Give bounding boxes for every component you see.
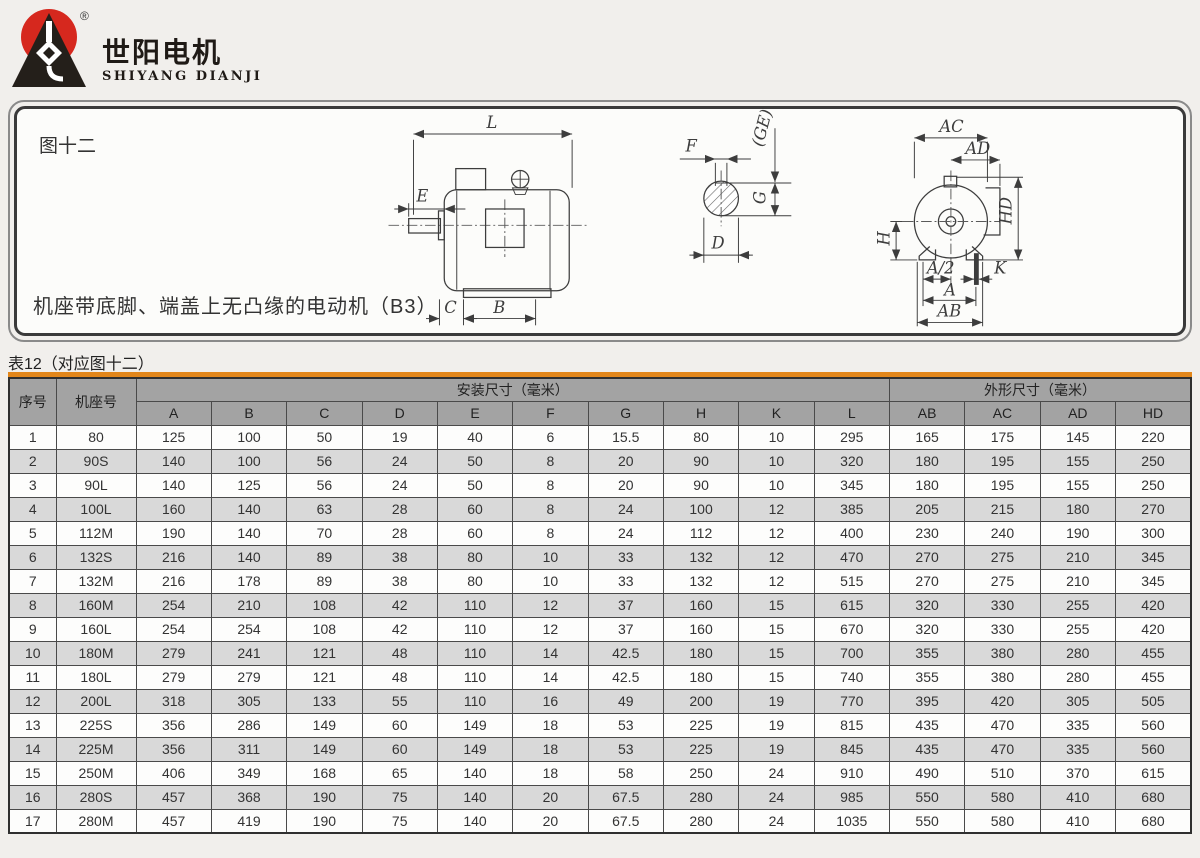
column-header-frame: 机座号 xyxy=(56,378,136,425)
dim-value: 318 xyxy=(136,689,211,713)
dim-value: 250 xyxy=(663,761,738,785)
dim-value: 75 xyxy=(362,785,437,809)
dim-value: 550 xyxy=(889,809,964,833)
dim-value: 220 xyxy=(1115,425,1191,449)
dim-value: 80 xyxy=(663,425,738,449)
dim-value: 14 xyxy=(513,665,588,689)
dim-value: 110 xyxy=(437,665,512,689)
dim-value: 132 xyxy=(663,545,738,569)
dim-value: 205 xyxy=(889,497,964,521)
dim-value: 345 xyxy=(814,473,889,497)
dim-value: 108 xyxy=(287,593,362,617)
header-group-row: 序号 机座号 安装尺寸（毫米） 外形尺寸（毫米） xyxy=(9,378,1191,401)
dim-value: 56 xyxy=(287,449,362,473)
dim-value: 67.5 xyxy=(588,785,663,809)
dim-value: 455 xyxy=(1115,641,1191,665)
svg-text:C: C xyxy=(444,298,457,317)
table-row: 7132M21617889388010331321251527027521034… xyxy=(9,569,1191,593)
dim-value: 8 xyxy=(513,449,588,473)
dim-value: 180 xyxy=(1040,497,1115,521)
column-group-install: 安装尺寸（毫米） xyxy=(136,378,889,401)
row-number: 14 xyxy=(9,737,56,761)
dim-value: 12 xyxy=(739,521,814,545)
dim-value: 50 xyxy=(287,425,362,449)
dim-value: 420 xyxy=(965,689,1040,713)
dim-value: 345 xyxy=(1115,545,1191,569)
dim-value: 89 xyxy=(287,569,362,593)
dim-value: 368 xyxy=(211,785,286,809)
registered-mark: ® xyxy=(80,9,89,23)
dim-value: 216 xyxy=(136,545,211,569)
svg-text:L: L xyxy=(486,113,498,132)
company-logo: ® 世阳电机 SHIYANG DIANJI xyxy=(10,6,262,92)
dim-value: 168 xyxy=(287,761,362,785)
dim-value: 370 xyxy=(1040,761,1115,785)
frame-size: 132M xyxy=(56,569,136,593)
dim-value: 470 xyxy=(965,713,1040,737)
dim-value: 700 xyxy=(814,641,889,665)
dim-value: 241 xyxy=(211,641,286,665)
row-number: 12 xyxy=(9,689,56,713)
dim-value: 10 xyxy=(739,449,814,473)
dim-value: 8 xyxy=(513,521,588,545)
table-row: 290S1401005624508209010320180195155250 xyxy=(9,449,1191,473)
dim-value: 20 xyxy=(513,809,588,833)
row-number: 16 xyxy=(9,785,56,809)
dim-value: 37 xyxy=(588,593,663,617)
dim-value: 305 xyxy=(211,689,286,713)
dim-value: 38 xyxy=(362,569,437,593)
frame-size: 250M xyxy=(56,761,136,785)
row-number: 11 xyxy=(9,665,56,689)
dim-value: 15 xyxy=(739,641,814,665)
dim-value: 108 xyxy=(287,617,362,641)
dim-value: 175 xyxy=(965,425,1040,449)
dim-value: 28 xyxy=(362,497,437,521)
dim-value: 470 xyxy=(965,737,1040,761)
dim-value: 48 xyxy=(362,665,437,689)
dim-value: 910 xyxy=(814,761,889,785)
dim-value: 145 xyxy=(1040,425,1115,449)
table-row: 14225M3563111496014918532251984543547033… xyxy=(9,737,1191,761)
frame-size: 90L xyxy=(56,473,136,497)
dim-value: 190 xyxy=(287,809,362,833)
dim-value: 100 xyxy=(211,449,286,473)
dim-value: 20 xyxy=(588,449,663,473)
table-row: 11180L279279121481101442.518015740355380… xyxy=(9,665,1191,689)
logo-emblem-icon: ® xyxy=(10,6,94,92)
dim-value: 18 xyxy=(513,761,588,785)
column-header-h: H xyxy=(663,401,738,425)
dim-value: 24 xyxy=(739,785,814,809)
dim-value: 385 xyxy=(814,497,889,521)
dim-value: 250 xyxy=(1115,473,1191,497)
dim-value: 330 xyxy=(965,617,1040,641)
column-header-k: K xyxy=(739,401,814,425)
dim-value: 15 xyxy=(739,665,814,689)
dim-value: 42.5 xyxy=(588,641,663,665)
dim-value: 24 xyxy=(739,761,814,785)
dim-value: 155 xyxy=(1040,473,1115,497)
dim-value: 320 xyxy=(889,593,964,617)
dim-value: 121 xyxy=(287,641,362,665)
dim-value: 133 xyxy=(287,689,362,713)
dim-value: 60 xyxy=(362,737,437,761)
dim-value: 58 xyxy=(588,761,663,785)
dim-value: 455 xyxy=(1115,665,1191,689)
dim-value: 580 xyxy=(965,809,1040,833)
dim-value: 12 xyxy=(739,497,814,521)
table-row: 4100L16014063286082410012385205215180270 xyxy=(9,497,1191,521)
dim-value: 254 xyxy=(211,617,286,641)
dim-value: 140 xyxy=(437,785,512,809)
frame-size: 225S xyxy=(56,713,136,737)
dim-value: 18 xyxy=(513,737,588,761)
dim-value: 38 xyxy=(362,545,437,569)
svg-text:A/2: A/2 xyxy=(925,258,955,277)
dim-value: 24 xyxy=(588,497,663,521)
dim-value: 286 xyxy=(211,713,286,737)
dim-value: 470 xyxy=(814,545,889,569)
frame-size: 280S xyxy=(56,785,136,809)
dim-value: 149 xyxy=(437,713,512,737)
dim-value: 80 xyxy=(437,545,512,569)
dim-value: 160 xyxy=(136,497,211,521)
dim-value: 300 xyxy=(1115,521,1191,545)
column-header-c: C xyxy=(287,401,362,425)
row-number: 9 xyxy=(9,617,56,641)
dim-value: 63 xyxy=(287,497,362,521)
dim-value: 15 xyxy=(739,593,814,617)
dim-value: 140 xyxy=(211,545,286,569)
dim-value: 100 xyxy=(211,425,286,449)
dim-value: 56 xyxy=(287,473,362,497)
dim-value: 110 xyxy=(437,617,512,641)
dim-value: 356 xyxy=(136,713,211,737)
dim-value: 140 xyxy=(211,521,286,545)
dim-value: 110 xyxy=(437,593,512,617)
dim-value: 89 xyxy=(287,545,362,569)
dim-value: 33 xyxy=(588,545,663,569)
column-header-e: E xyxy=(437,401,512,425)
dim-value: 335 xyxy=(1040,737,1115,761)
svg-text:D: D xyxy=(711,233,725,252)
dim-value: 70 xyxy=(287,521,362,545)
table-row: 17280M457419190751402067.528024103555058… xyxy=(9,809,1191,833)
dim-value: 815 xyxy=(814,713,889,737)
dim-value: 395 xyxy=(889,689,964,713)
figure-label: 图十二 xyxy=(39,131,96,158)
dim-value: 295 xyxy=(814,425,889,449)
dim-value: 10 xyxy=(739,425,814,449)
dim-value: 490 xyxy=(889,761,964,785)
figure-panel: L E C B xyxy=(8,100,1192,342)
dim-value: 48 xyxy=(362,641,437,665)
svg-text:H: H xyxy=(874,231,893,247)
table-row: 5112M19014070286082411212400230240190300 xyxy=(9,521,1191,545)
svg-text:AB: AB xyxy=(935,302,961,321)
column-header-g: G xyxy=(588,401,663,425)
dim-value: 255 xyxy=(1040,593,1115,617)
dim-value: 215 xyxy=(965,497,1040,521)
frame-size: 200L xyxy=(56,689,136,713)
table-title: 表12（对应图十二） xyxy=(8,350,154,374)
dim-value: 419 xyxy=(211,809,286,833)
row-number: 2 xyxy=(9,449,56,473)
frame-size: 225M xyxy=(56,737,136,761)
dim-value: 6 xyxy=(513,425,588,449)
dim-value: 53 xyxy=(588,737,663,761)
column-group-outline: 外形尺寸（毫米） xyxy=(889,378,1191,401)
dim-value: 20 xyxy=(588,473,663,497)
dim-value: 24 xyxy=(362,449,437,473)
dim-value: 18 xyxy=(513,713,588,737)
dim-value: 254 xyxy=(136,617,211,641)
row-number: 17 xyxy=(9,809,56,833)
dim-value: 225 xyxy=(663,737,738,761)
dim-value: 110 xyxy=(437,641,512,665)
dim-value: 560 xyxy=(1115,713,1191,737)
dim-value: 132 xyxy=(663,569,738,593)
dim-value: 90 xyxy=(663,473,738,497)
frame-size: 280M xyxy=(56,809,136,833)
dim-value: 28 xyxy=(362,521,437,545)
dim-value: 19 xyxy=(362,425,437,449)
dim-value: 24 xyxy=(362,473,437,497)
dim-value: 615 xyxy=(1115,761,1191,785)
dim-value: 149 xyxy=(437,737,512,761)
page: { "logo": { "name_cn": "世阳电机", "name_en"… xyxy=(0,0,1200,858)
end-view-drawing: AC AD HD H A/2 xyxy=(874,117,1023,326)
dim-value: 255 xyxy=(1040,617,1115,641)
dim-value: 50 xyxy=(437,473,512,497)
dim-value: 190 xyxy=(136,521,211,545)
dim-value: 12 xyxy=(513,617,588,641)
dim-value: 275 xyxy=(965,545,1040,569)
dim-value: 60 xyxy=(437,497,512,521)
dim-value: 670 xyxy=(814,617,889,641)
dim-value: 121 xyxy=(287,665,362,689)
svg-text:G: G xyxy=(750,191,769,204)
dim-value: 230 xyxy=(889,521,964,545)
dim-value: 140 xyxy=(437,809,512,833)
dim-value: 75 xyxy=(362,809,437,833)
dim-value: 845 xyxy=(814,737,889,761)
dim-value: 55 xyxy=(362,689,437,713)
dim-value: 410 xyxy=(1040,785,1115,809)
column-header-b: B xyxy=(211,401,286,425)
table-row: 10180M279241121481101442.518015700355380… xyxy=(9,641,1191,665)
dim-value: 305 xyxy=(1040,689,1115,713)
column-header-d: D xyxy=(362,401,437,425)
dim-value: 270 xyxy=(889,545,964,569)
dim-value: 200 xyxy=(663,689,738,713)
dim-value: 349 xyxy=(211,761,286,785)
dim-value: 406 xyxy=(136,761,211,785)
frame-size: 160L xyxy=(56,617,136,641)
dim-value: 210 xyxy=(1040,545,1115,569)
column-header-no: 序号 xyxy=(9,378,56,425)
dim-value: 279 xyxy=(211,665,286,689)
table-row: 180125100501940615.58010295165175145220 xyxy=(9,425,1191,449)
svg-text:AC: AC xyxy=(937,117,964,136)
row-number: 8 xyxy=(9,593,56,617)
dim-value: 216 xyxy=(136,569,211,593)
dim-value: 380 xyxy=(965,641,1040,665)
frame-size: 160M xyxy=(56,593,136,617)
dim-value: 112 xyxy=(663,521,738,545)
dim-value: 37 xyxy=(588,617,663,641)
column-header-f: F xyxy=(513,401,588,425)
dim-value: 515 xyxy=(814,569,889,593)
dim-value: 125 xyxy=(136,425,211,449)
dim-value: 178 xyxy=(211,569,286,593)
dim-value: 435 xyxy=(889,713,964,737)
table-row: 16280S457368190751402067.528024985550580… xyxy=(9,785,1191,809)
figure-panel-inner: L E C B xyxy=(14,106,1186,336)
figure-caption: 机座带底脚、端盖上无凸缘的电动机（B3） xyxy=(33,290,437,319)
dim-value: 280 xyxy=(1040,641,1115,665)
dim-value: 140 xyxy=(211,497,286,521)
table-row: 8160M25421010842110123716015615320330255… xyxy=(9,593,1191,617)
dim-value: 165 xyxy=(889,425,964,449)
frame-size: 180M xyxy=(56,641,136,665)
dim-value: 8 xyxy=(513,497,588,521)
dim-value: 270 xyxy=(1115,497,1191,521)
frame-size: 180L xyxy=(56,665,136,689)
dim-value: 140 xyxy=(437,761,512,785)
dim-value: 335 xyxy=(1040,713,1115,737)
dim-value: 505 xyxy=(1115,689,1191,713)
dim-value: 225 xyxy=(663,713,738,737)
table-body: 180125100501940615.580102951651751452202… xyxy=(9,425,1191,833)
dim-value: 90 xyxy=(663,449,738,473)
dim-value: 275 xyxy=(965,569,1040,593)
frame-size: 90S xyxy=(56,449,136,473)
dim-value: 42 xyxy=(362,593,437,617)
dim-value: 280 xyxy=(1040,665,1115,689)
dim-value: 190 xyxy=(1040,521,1115,545)
dim-value: 457 xyxy=(136,785,211,809)
dim-value: 160 xyxy=(663,593,738,617)
dim-value: 60 xyxy=(437,521,512,545)
dim-value: 195 xyxy=(965,449,1040,473)
dim-value: 149 xyxy=(287,713,362,737)
dim-value: 280 xyxy=(663,785,738,809)
dim-value: 740 xyxy=(814,665,889,689)
table-row: 13225S3562861496014918532251981543547033… xyxy=(9,713,1191,737)
dim-value: 155 xyxy=(1040,449,1115,473)
dim-value: 60 xyxy=(362,713,437,737)
column-header-a: A xyxy=(136,401,211,425)
frame-size: 132S xyxy=(56,545,136,569)
row-number: 13 xyxy=(9,713,56,737)
dim-value: 160 xyxy=(663,617,738,641)
dim-value: 24 xyxy=(739,809,814,833)
dim-value: 53 xyxy=(588,713,663,737)
dim-value: 279 xyxy=(136,665,211,689)
svg-text:E: E xyxy=(415,186,428,205)
column-header-hd: HD xyxy=(1115,401,1191,425)
dim-value: 380 xyxy=(965,665,1040,689)
dim-value: 125 xyxy=(211,473,286,497)
company-name-en: SHIYANG DIANJI xyxy=(102,69,262,84)
dim-value: 10 xyxy=(739,473,814,497)
dim-value: 254 xyxy=(136,593,211,617)
company-name-cn: 世阳电机 xyxy=(102,38,262,67)
dim-value: 12 xyxy=(513,593,588,617)
dimensions-table: 序号 机座号 安装尺寸（毫米） 外形尺寸（毫米） ABCDEFGHKLABACA… xyxy=(8,377,1192,834)
dim-value: 49 xyxy=(588,689,663,713)
dim-value: 435 xyxy=(889,737,964,761)
dim-value: 65 xyxy=(362,761,437,785)
table-row: 15250M4063491686514018582502491049051037… xyxy=(9,761,1191,785)
frame-size: 80 xyxy=(56,425,136,449)
dim-value: 10 xyxy=(513,545,588,569)
svg-text:K: K xyxy=(993,258,1007,277)
dim-value: 457 xyxy=(136,809,211,833)
dim-value: 279 xyxy=(136,641,211,665)
dim-value: 42 xyxy=(362,617,437,641)
dim-value: 311 xyxy=(211,737,286,761)
column-header-ab: AB xyxy=(889,401,964,425)
dim-value: 345 xyxy=(1115,569,1191,593)
row-number: 5 xyxy=(9,521,56,545)
dim-value: 330 xyxy=(965,593,1040,617)
dim-value: 770 xyxy=(814,689,889,713)
dim-value: 14 xyxy=(513,641,588,665)
dim-value: 355 xyxy=(889,665,964,689)
dim-value: 320 xyxy=(814,449,889,473)
column-header-l: L xyxy=(814,401,889,425)
dim-value: 10 xyxy=(513,569,588,593)
svg-text:HD: HD xyxy=(996,197,1015,225)
dim-value: 195 xyxy=(965,473,1040,497)
column-header-ac: AC xyxy=(965,401,1040,425)
row-number: 10 xyxy=(9,641,56,665)
dim-value: 50 xyxy=(437,449,512,473)
row-number: 15 xyxy=(9,761,56,785)
dim-value: 210 xyxy=(211,593,286,617)
dim-value: 180 xyxy=(663,641,738,665)
dim-value: 12 xyxy=(739,545,814,569)
dim-value: 110 xyxy=(437,689,512,713)
dim-value: 420 xyxy=(1115,617,1191,641)
table-row: 390L1401255624508209010345180195155250 xyxy=(9,473,1191,497)
dim-value: 19 xyxy=(739,689,814,713)
dim-value: 80 xyxy=(437,569,512,593)
dim-value: 210 xyxy=(1040,569,1115,593)
dim-value: 33 xyxy=(588,569,663,593)
column-header-ad: AD xyxy=(1040,401,1115,425)
table-row: 6132S21614089388010331321247027027521034… xyxy=(9,545,1191,569)
dim-value: 615 xyxy=(814,593,889,617)
dim-value: 100 xyxy=(663,497,738,521)
dim-value: 180 xyxy=(663,665,738,689)
dim-value: 180 xyxy=(889,449,964,473)
dim-value: 12 xyxy=(739,569,814,593)
dim-value: 67.5 xyxy=(588,809,663,833)
row-number: 1 xyxy=(9,425,56,449)
table-row: 9160L25425410842110123716015670320330255… xyxy=(9,617,1191,641)
subheader-row: ABCDEFGHKLABACADHD xyxy=(9,401,1191,425)
dim-value: 320 xyxy=(889,617,964,641)
row-number: 6 xyxy=(9,545,56,569)
frame-size: 112M xyxy=(56,521,136,545)
dim-value: 190 xyxy=(287,785,362,809)
dim-value: 580 xyxy=(965,785,1040,809)
dim-value: 8 xyxy=(513,473,588,497)
